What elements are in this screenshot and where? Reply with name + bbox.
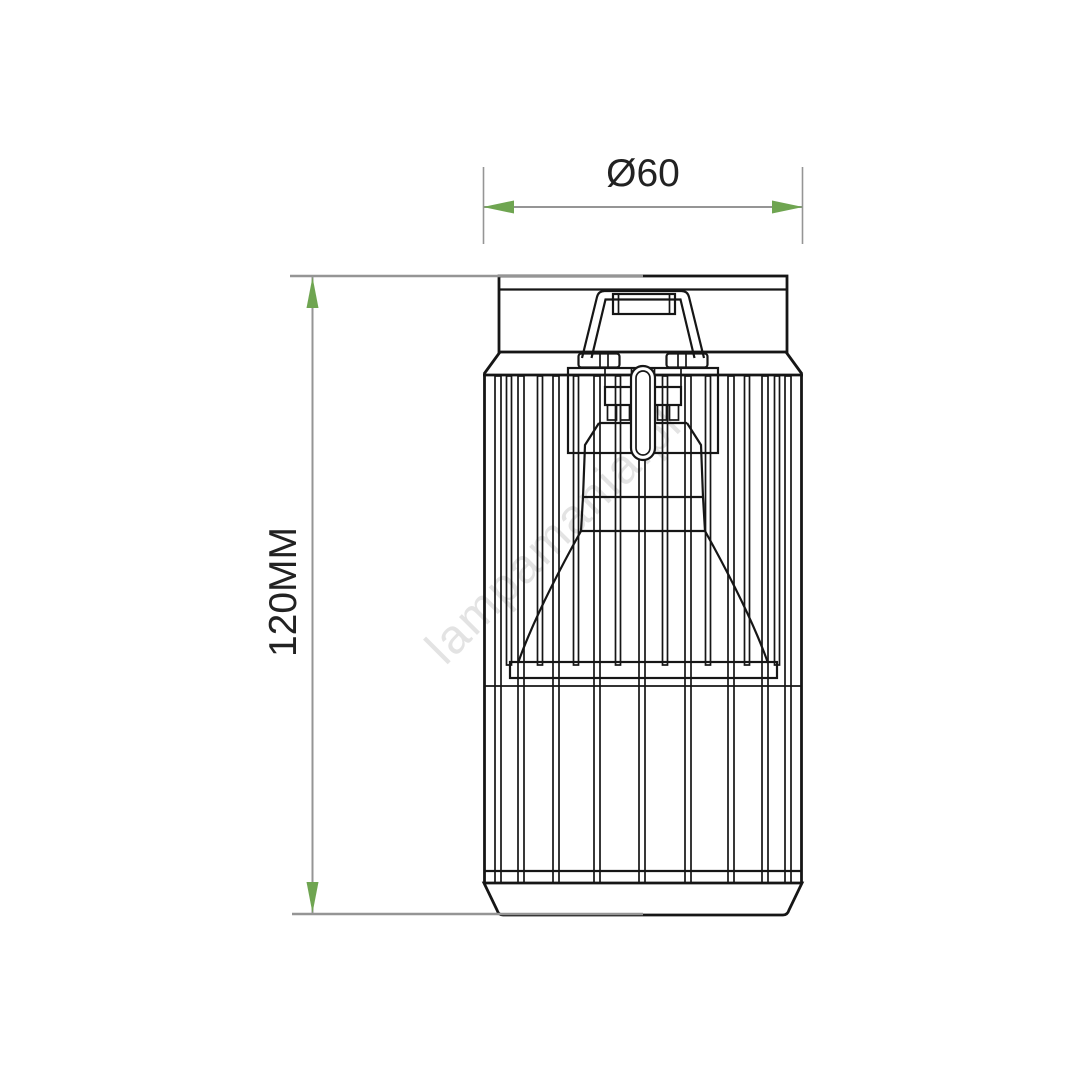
- arrowhead-down-icon: [307, 882, 319, 913]
- bracket-foot-right: [667, 354, 708, 368]
- width-dimension-label: Ø60: [606, 152, 680, 196]
- fixture-drawing: [0, 0, 1080, 1080]
- terminal-block-left: [605, 387, 632, 405]
- arrowhead-right-icon: [772, 201, 803, 214]
- cage-bottom: [484, 871, 802, 915]
- height-dimension: [290, 276, 643, 914]
- drawing-canvas: lampamania.pl: [0, 0, 1080, 1080]
- height-dimension-label: 120MM: [262, 527, 306, 657]
- bulb-ring: [484, 662, 802, 686]
- socket-pin: [631, 366, 655, 460]
- arrowhead-up-icon: [307, 277, 319, 308]
- arrowhead-left-icon: [483, 201, 514, 214]
- mounting-bracket: [579, 291, 708, 368]
- bracket-foot-left: [579, 354, 620, 368]
